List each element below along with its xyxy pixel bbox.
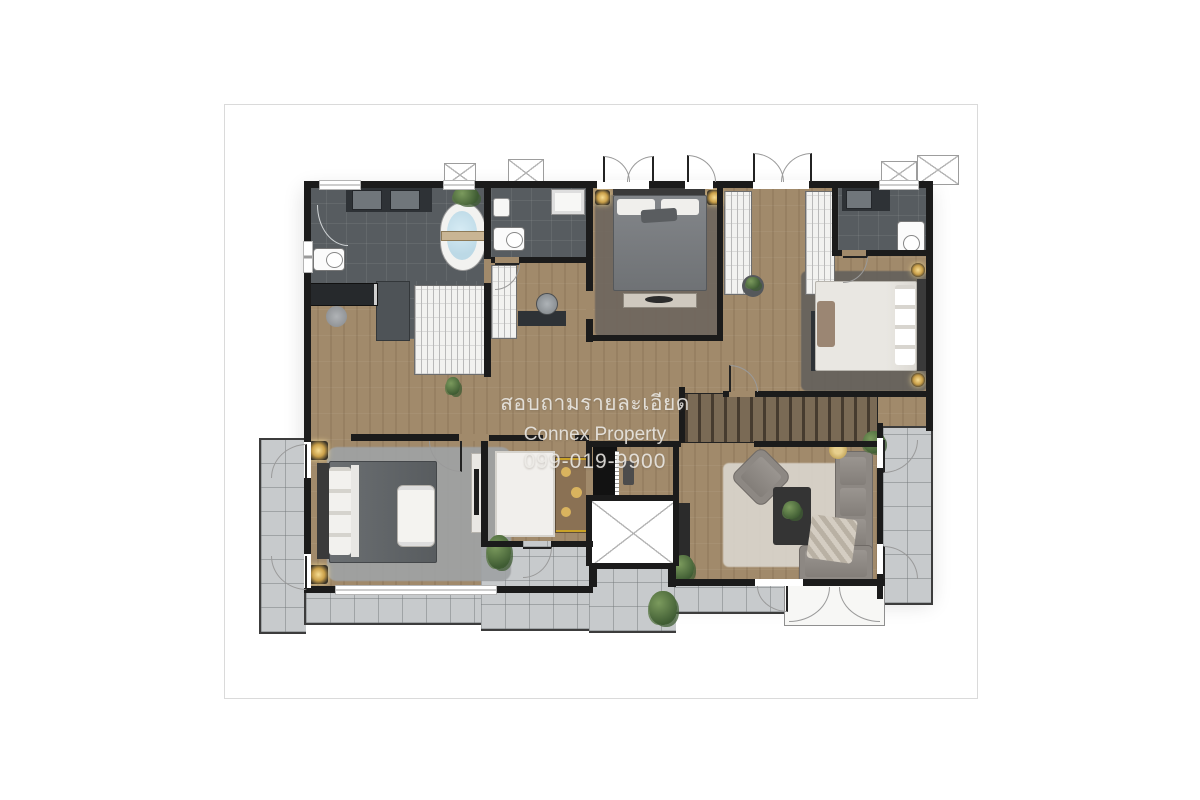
window-master-bottom — [335, 585, 497, 595]
master-bed-fold — [351, 465, 359, 557]
void-post-left — [589, 565, 597, 587]
bed2-accent-pillow — [641, 208, 678, 223]
bed3-lamp-bottom — [911, 373, 925, 387]
toilet-bath2 — [493, 227, 525, 251]
bed3-lamp-top — [911, 263, 925, 277]
terrace-plant-2 — [649, 591, 677, 625]
prayer-gold-item-2 — [571, 487, 582, 498]
window-bath3-top — [879, 180, 919, 190]
master-lamp-top — [309, 441, 328, 460]
window-masterbath-1 — [319, 180, 361, 190]
bed2-lamp-left — [595, 190, 610, 205]
watermark-line-thai: สอบถามรายละเอียด — [465, 387, 725, 420]
watermark-line-phone: 099-019-9900 — [465, 450, 725, 474]
wall-void-top — [589, 495, 676, 501]
wardrobe-dark — [376, 281, 410, 341]
wall-master-top — [351, 434, 459, 441]
void-area — [589, 499, 678, 568]
master-vanity-mirror-1 — [352, 190, 382, 210]
toilet-master — [313, 248, 345, 271]
wall-bath3-left — [832, 184, 838, 256]
window-left-wall — [303, 241, 313, 273]
bathtub-caddy — [441, 231, 485, 241]
sofa-cushion-1 — [840, 457, 866, 485]
makeup-stool — [326, 306, 347, 327]
wall-living-top — [754, 441, 883, 447]
bed2-bench-tray — [645, 296, 673, 303]
corridor-table-plant — [746, 277, 760, 289]
dressing-mirror — [536, 293, 558, 315]
floorplan-page: สอบถามรายละเอียด Connex Property 099-019… — [224, 104, 978, 699]
door-arc-top-3 — [687, 155, 716, 182]
master-bench-sofa — [397, 485, 435, 547]
toilet-bath3 — [897, 221, 925, 253]
closet-plant — [446, 377, 460, 395]
toilet-master-bowl — [326, 252, 343, 268]
watermark-line-brand: Connex Property — [465, 424, 725, 446]
wall-void-left — [586, 501, 592, 566]
wall-bed2-bottom — [589, 335, 723, 341]
makeup-counter — [308, 283, 378, 306]
door-gap-closet — [484, 259, 491, 283]
door-arc-top-5 — [781, 153, 812, 182]
door-gap-living-front — [755, 579, 803, 586]
master-tv — [474, 469, 479, 515]
wall-void-bottom — [589, 563, 676, 569]
wardrobe-corridor-right — [805, 191, 835, 295]
bed3-headboard — [917, 279, 926, 371]
master-bed-headboard — [317, 463, 329, 559]
screenshot-canvas: สอบถามรายละเอียด Connex Property 099-019… — [0, 0, 1200, 800]
door-arc-top-2 — [627, 156, 654, 182]
master-bed-pillows — [329, 467, 351, 555]
door-gap-bed2 — [586, 291, 593, 319]
door-arc-top-4 — [753, 153, 784, 182]
wall-bed2-right — [717, 184, 723, 339]
master-vanity-mirror-2 — [390, 190, 420, 210]
bed3-throw — [817, 301, 835, 347]
mirror-bath3 — [846, 190, 872, 209]
sink-bath2 — [493, 198, 510, 217]
prayer-gold-item-3 — [561, 507, 571, 517]
toilet-bath2-bowl — [506, 232, 523, 248]
void-post-right — [668, 565, 676, 587]
door-arc-top-1 — [603, 156, 630, 182]
master-lamp-bottom — [309, 565, 328, 584]
bed3-pillows — [895, 285, 915, 365]
sofa-cushion-2 — [840, 488, 866, 516]
window-masterbath-2 — [443, 180, 475, 190]
walkin-closet-rack — [414, 285, 488, 375]
coffee-table-plant — [783, 501, 801, 519]
watermark: สอบถามรายละเอียด Connex Property 099-019… — [465, 387, 725, 474]
laundry-unit — [551, 189, 585, 215]
sofa-blanket — [806, 514, 858, 564]
